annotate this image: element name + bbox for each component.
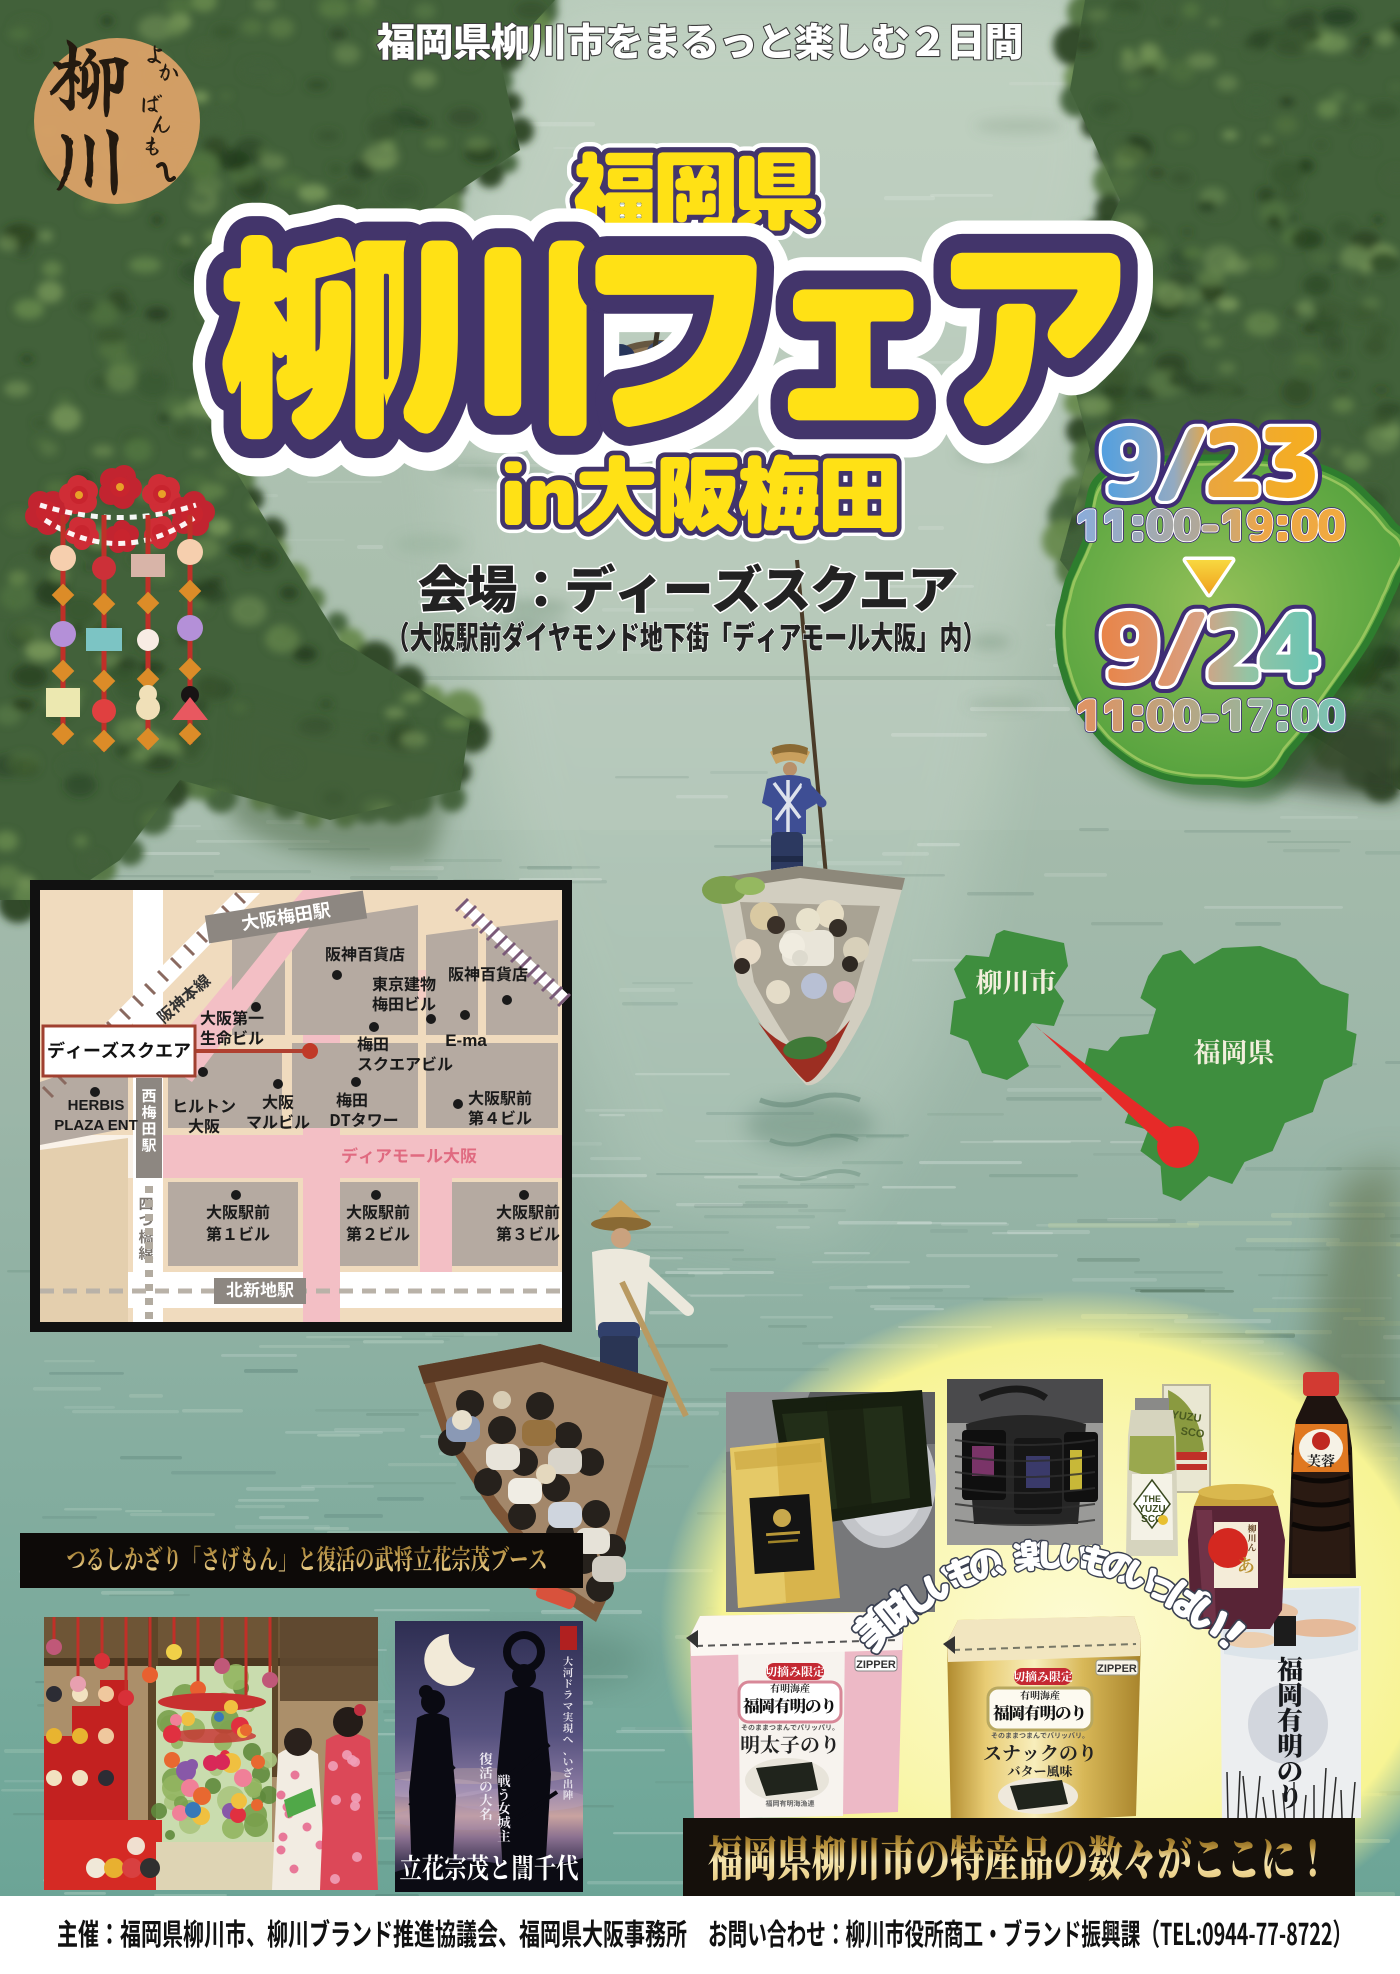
svg-text:HERBIS: HERBIS: [68, 1097, 125, 1114]
svg-text:ZIPPER: ZIPPER: [856, 1659, 896, 1671]
svg-text:THE: THE: [1143, 1494, 1161, 1504]
svg-text:ZIPPER: ZIPPER: [1097, 1663, 1137, 1675]
svg-text:PLAZA ENT: PLAZA ENT: [54, 1117, 138, 1134]
svg-text:E-ma: E-ma: [445, 1031, 487, 1050]
